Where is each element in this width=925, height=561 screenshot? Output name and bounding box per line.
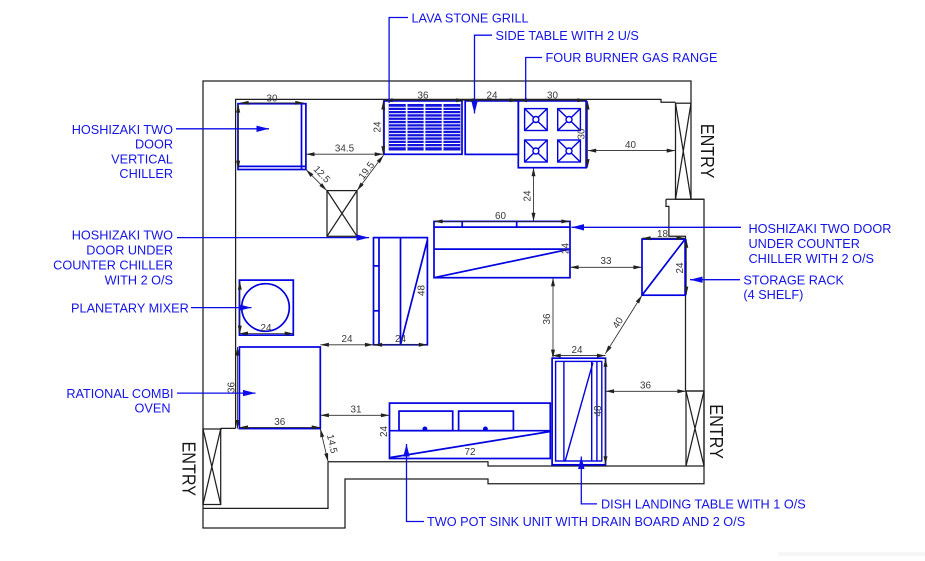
svg-text:STORAGE RACK: STORAGE RACK [743, 273, 844, 287]
svg-text:24: 24 [261, 323, 272, 334]
svg-text:40: 40 [625, 140, 636, 151]
svg-text:DOOR UNDER: DOOR UNDER [86, 243, 173, 257]
svg-text:30: 30 [547, 91, 558, 102]
svg-text:24: 24 [561, 243, 572, 254]
svg-text:24: 24 [379, 426, 390, 437]
svg-text:33: 33 [601, 256, 612, 267]
svg-text:30: 30 [267, 94, 278, 105]
svg-text:24: 24 [342, 334, 353, 345]
svg-text:FOUR BURNER GAS RANGE: FOUR BURNER GAS RANGE [546, 51, 718, 65]
svg-text:72: 72 [465, 447, 476, 458]
svg-text:OVEN: OVEN [135, 402, 171, 416]
svg-text:60: 60 [495, 211, 506, 222]
svg-text:WITH 2 O/S: WITH 2 O/S [105, 274, 173, 288]
svg-text:18: 18 [657, 229, 668, 240]
svg-text:RATIONAL COMBI: RATIONAL COMBI [66, 387, 173, 401]
svg-text:24: 24 [675, 262, 686, 273]
svg-text:36: 36 [274, 417, 285, 428]
svg-text:HOSHIZAKI TWO: HOSHIZAKI TWO [72, 123, 173, 137]
svg-text:SIDE TABLE WITH 2 U/S: SIDE TABLE WITH 2 U/S [496, 29, 639, 43]
svg-text:PLANETARY MIXER: PLANETARY MIXER [71, 301, 189, 315]
svg-text:24: 24 [395, 334, 406, 345]
svg-text:COUNTER CHILLER: COUNTER CHILLER [53, 258, 173, 272]
svg-text:31: 31 [351, 405, 362, 416]
svg-text:CHILLER WITH 2 O/S: CHILLER WITH 2 O/S [749, 252, 875, 266]
svg-text:UNDER COUNTER: UNDER COUNTER [749, 237, 860, 251]
svg-text:DISH LANDING TABLE WITH 1 O/S: DISH LANDING TABLE WITH 1 O/S [601, 498, 806, 512]
svg-text:36: 36 [640, 381, 651, 392]
svg-text:CHILLER: CHILLER [119, 167, 173, 181]
svg-text:ENTRY: ENTRY [697, 124, 718, 179]
svg-text:34.5: 34.5 [335, 144, 355, 155]
svg-text:24: 24 [373, 121, 384, 132]
svg-text:(4 SHELF): (4 SHELF) [743, 288, 803, 302]
svg-text:HOSHIZAKI TWO: HOSHIZAKI TWO [72, 229, 173, 243]
svg-text:DOOR: DOOR [135, 138, 173, 152]
svg-text:36: 36 [542, 313, 553, 324]
svg-text:48: 48 [417, 285, 428, 296]
svg-text:ENTRY: ENTRY [178, 442, 199, 497]
svg-text:VERTICAL: VERTICAL [111, 152, 173, 166]
svg-text:36: 36 [227, 382, 238, 393]
svg-text:36: 36 [418, 91, 429, 102]
svg-text:TWO POT SINK UNIT WITH DRAIN B: TWO POT SINK UNIT WITH DRAIN BOARD AND 2… [427, 515, 745, 529]
svg-text:ENTRY: ENTRY [706, 404, 727, 459]
svg-text:30: 30 [577, 128, 588, 139]
svg-text:24: 24 [572, 345, 583, 356]
svg-text:LAVA STONE GRILL: LAVA STONE GRILL [412, 11, 529, 25]
svg-text:HOSHIZAKI TWO DOOR: HOSHIZAKI TWO DOOR [749, 222, 892, 236]
svg-text:48: 48 [593, 405, 604, 416]
svg-text:24: 24 [523, 190, 534, 201]
svg-text:24: 24 [487, 91, 498, 102]
